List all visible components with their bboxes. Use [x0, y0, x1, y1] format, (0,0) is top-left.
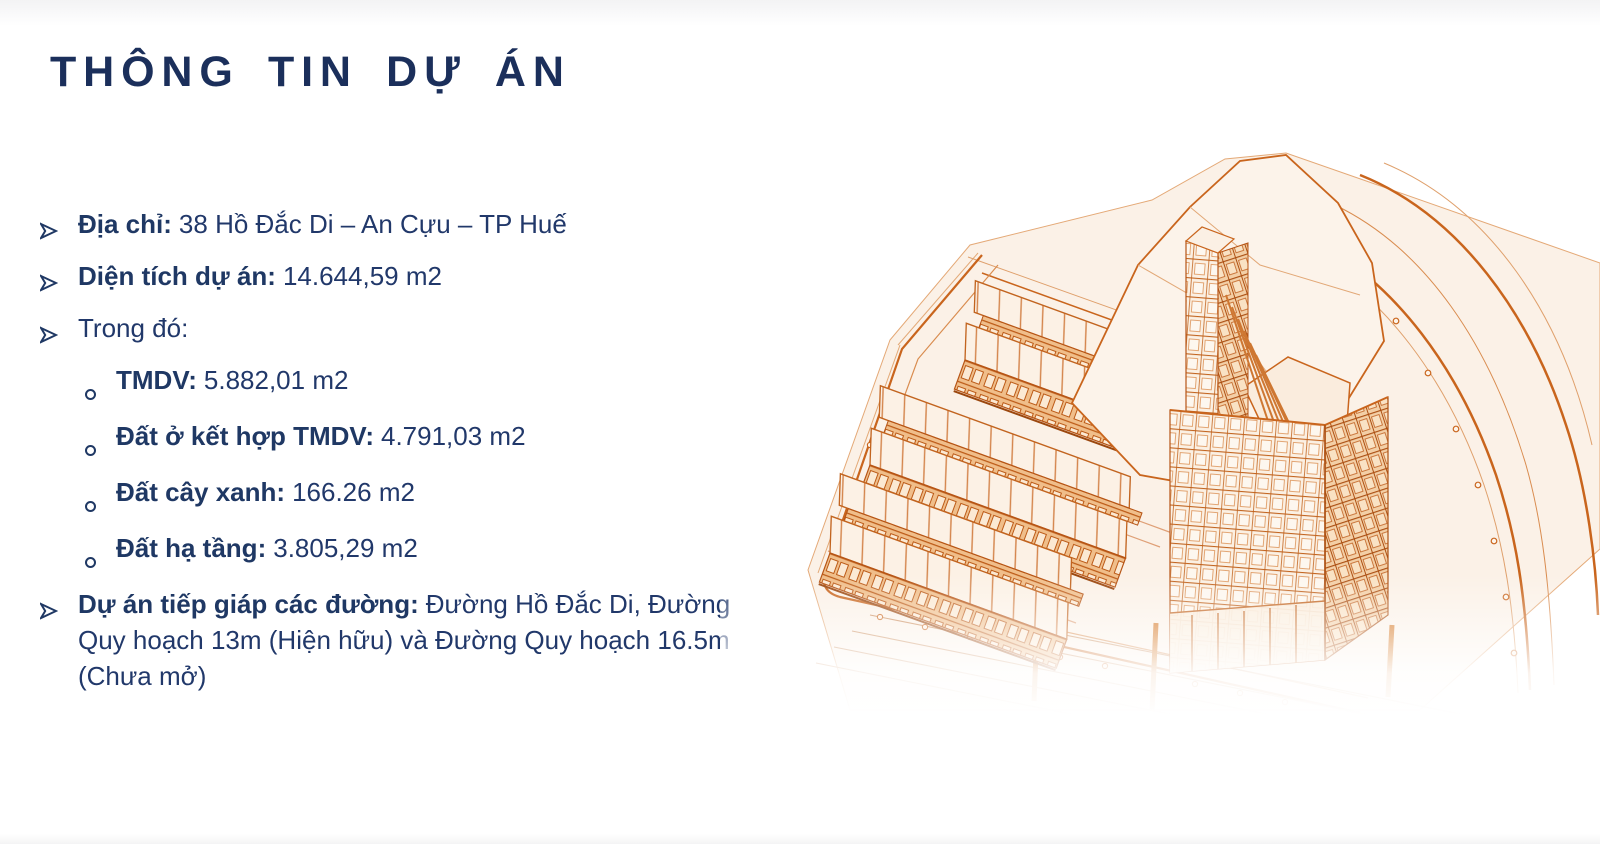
site-illustration	[720, 145, 1600, 715]
page-title: THÔNG TIN DỰ ÁN	[50, 48, 571, 97]
project-info-slide: { "slide": { "title": "THÔNG TIN DỰ ÁN" …	[0, 0, 1600, 844]
circle-bullet-icon	[82, 474, 116, 521]
list-item: Diện tích dự án:14.644,59 m2	[40, 258, 740, 301]
list-item-text: Đất cây xanh:166.26 m2	[116, 474, 740, 521]
top-edge-artifact	[0, 0, 1600, 26]
list-item-text: Trong đó:	[78, 310, 740, 353]
list-item-text: Đất ở kết hợp TMDV:4.791,03 m2	[116, 418, 740, 465]
arrow-bullet-icon	[40, 310, 78, 353]
list-item-text: Đất hạ tầng:3.805,29 m2	[116, 530, 740, 577]
list-item-text: Diện tích dự án:14.644,59 m2	[78, 258, 740, 301]
arrow-bullet-icon	[40, 206, 78, 249]
fade-overlay	[720, 575, 1600, 715]
list-item: Dự án tiếp giáp các đường:Đường Hồ Đắc D…	[40, 586, 740, 694]
list-item: Trong đó:	[40, 310, 740, 353]
sub-list-item: TMDV:5.882,01 m2	[40, 362, 740, 409]
arrow-bullet-icon	[40, 258, 78, 301]
sub-list-item: Đất hạ tầng:3.805,29 m2	[40, 530, 740, 577]
circle-bullet-icon	[82, 362, 116, 409]
project-info-list: Địa chỉ:38 Hồ Đắc Di – An Cựu – TP Huế D…	[40, 206, 740, 703]
list-item: Địa chỉ:38 Hồ Đắc Di – An Cựu – TP Huế	[40, 206, 740, 249]
bottom-edge-artifact	[0, 834, 1600, 844]
sub-list-item: Đất cây xanh:166.26 m2	[40, 474, 740, 521]
list-item-text: Dự án tiếp giáp các đường:Đường Hồ Đắc D…	[78, 586, 740, 694]
circle-bullet-icon	[82, 418, 116, 465]
sub-list-item: Đất ở kết hợp TMDV:4.791,03 m2	[40, 418, 740, 465]
list-item-text: Địa chỉ:38 Hồ Đắc Di – An Cựu – TP Huế	[78, 206, 740, 249]
circle-bullet-icon	[82, 530, 116, 577]
list-item-text: TMDV:5.882,01 m2	[116, 362, 740, 409]
arrow-bullet-icon	[40, 586, 78, 694]
